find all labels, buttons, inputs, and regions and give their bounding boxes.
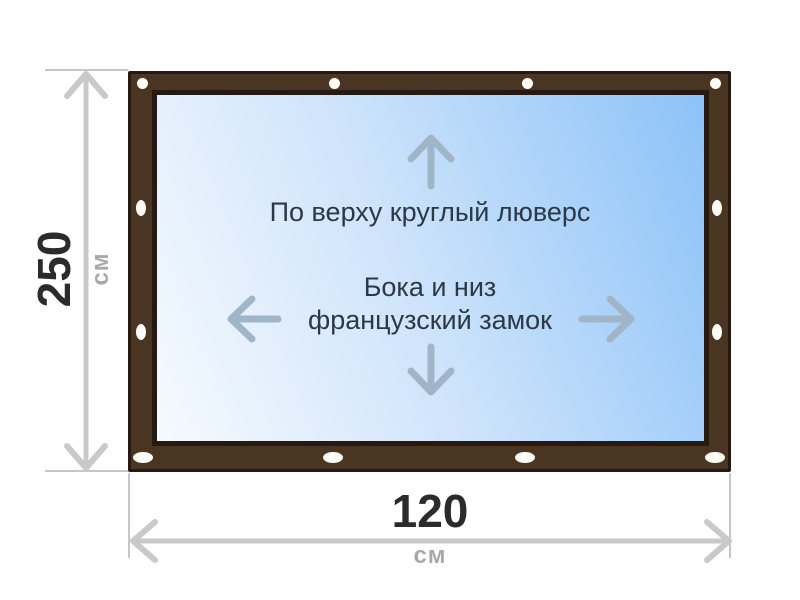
height-dimension-value: 250: [27, 231, 81, 308]
french-lock-icon: [136, 200, 146, 216]
french-lock-icon: [136, 324, 146, 340]
arrow-head-down-icon: [67, 446, 105, 468]
arrow-head-right-icon: [707, 522, 729, 560]
sides-fastening-note: Бока и низ французский замок: [157, 271, 703, 337]
sides-note-line-1: Бока и низ: [157, 271, 703, 304]
arrow-head-up-icon: [67, 74, 105, 96]
round-grommet-icon: [329, 78, 340, 89]
sides-note-line-2: французский замок: [157, 304, 703, 337]
width-dimension-value: 120: [392, 484, 469, 538]
product-dimension-diagram: По верху круглый люверс Бока и низ франц…: [0, 0, 800, 600]
width-dimension-unit: см: [413, 542, 446, 570]
arrow-head-left-icon: [133, 522, 155, 560]
french-lock-icon: [712, 324, 722, 340]
french-lock-icon: [133, 452, 153, 463]
round-grommet-icon: [710, 78, 721, 89]
french-lock-icon: [515, 452, 535, 463]
french-lock-icon: [705, 452, 725, 463]
pvc-panel: [152, 90, 709, 446]
french-lock-icon: [712, 200, 722, 216]
round-grommet-icon: [137, 78, 148, 89]
french-lock-icon: [323, 452, 343, 463]
round-grommet-icon: [522, 78, 533, 89]
height-dimension-unit: см: [87, 252, 115, 285]
top-fastening-note: По верху круглый люверс: [157, 196, 703, 229]
